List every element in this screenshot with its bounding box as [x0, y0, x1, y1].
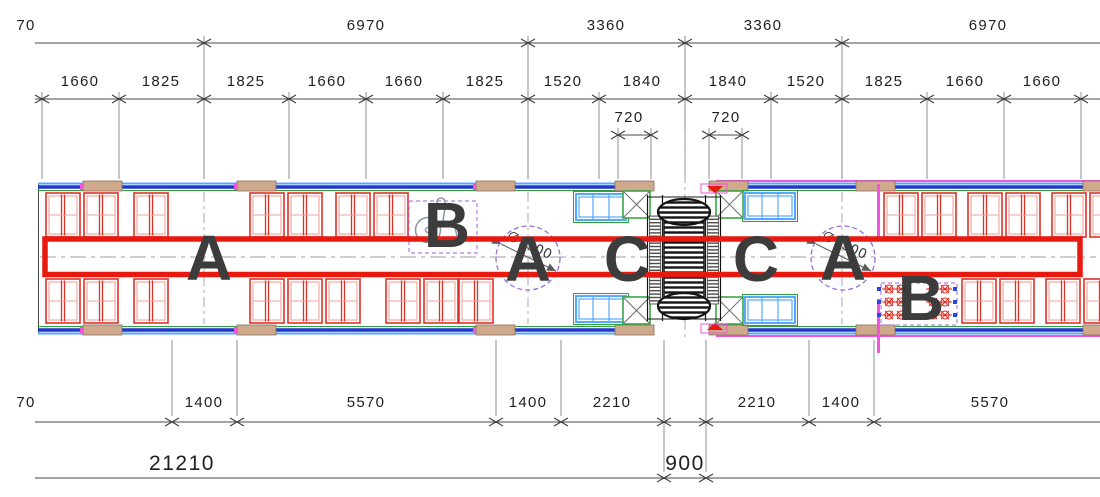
seat-unit — [326, 279, 360, 323]
seat-unit — [424, 279, 458, 323]
dimension-rows: 7069703360336069701660182518251660166018… — [16, 17, 1100, 482]
dimension-label: 1400 — [822, 394, 861, 411]
longitudinal-seat — [743, 295, 798, 326]
magenta-tag — [473, 327, 476, 334]
seat-unit — [1052, 193, 1086, 237]
seat-unit — [250, 279, 284, 323]
zone-label-a: A — [820, 222, 866, 294]
seat-unit — [336, 193, 370, 237]
dimension-label: 2210 — [593, 394, 632, 411]
magenta-tag — [234, 183, 237, 190]
dimension-label: 1840 — [709, 73, 748, 90]
dimension-label: 1660 — [61, 73, 100, 90]
dimension-label: 720 — [615, 109, 644, 126]
seat-unit — [386, 279, 420, 323]
dimension-label: 1400 — [509, 394, 548, 411]
seat-unit — [968, 193, 1002, 237]
zone-label-b: B — [898, 262, 944, 334]
marker-dot — [877, 287, 881, 291]
marker-dot — [877, 300, 881, 304]
seat-unit — [288, 193, 322, 237]
door-block — [856, 325, 895, 335]
seat-unit — [46, 279, 80, 323]
dimension-label: 2210 — [738, 394, 777, 411]
door-block — [856, 181, 895, 191]
seat-unit — [1000, 279, 1034, 323]
longitudinal-seat — [574, 192, 629, 223]
longitudinal-seat — [574, 294, 629, 325]
seat-unit — [374, 193, 408, 237]
dimension-label: 1660 — [308, 73, 347, 90]
seat-unit — [84, 193, 118, 237]
door-block — [615, 181, 654, 191]
dimension-label: 70 — [16, 17, 35, 34]
flip-seat-symbol — [882, 311, 896, 319]
end-wall-hatch — [708, 216, 719, 304]
seat-unit — [1090, 193, 1100, 237]
dimension-label: 1660 — [385, 73, 424, 90]
dimension-label: 900 — [665, 452, 705, 475]
dimension-label: 21210 — [149, 452, 215, 475]
seat-unit — [884, 193, 918, 237]
magenta-tag — [473, 183, 476, 190]
seat-unit — [134, 279, 168, 323]
floor-plan-drawing: 7069703360336069701660182518251660166018… — [0, 0, 1100, 497]
door-block — [83, 181, 122, 191]
zone-label-b: B — [424, 189, 470, 261]
dimension-label: 1520 — [544, 73, 583, 90]
diaphragm-plate — [658, 199, 710, 225]
seat-unit — [84, 279, 118, 323]
zone-label-a: A — [505, 223, 551, 295]
seat-unit — [922, 193, 956, 237]
dimension-label: 6970 — [969, 17, 1008, 34]
marker-dot — [953, 313, 957, 317]
dimension-label: 1520 — [787, 73, 826, 90]
seat-unit — [962, 279, 996, 323]
seat-unit — [459, 279, 493, 323]
door-block — [237, 325, 276, 335]
drawing-canvas: 7069703360336069701660182518251660166018… — [0, 0, 1100, 497]
seat-unit — [46, 193, 80, 237]
magenta-tag — [234, 327, 237, 334]
door-block — [476, 181, 515, 191]
seat-unit — [1084, 279, 1100, 323]
dimension-label: 70 — [16, 394, 35, 411]
door-block — [615, 325, 654, 335]
dimension-label: 1400 — [185, 394, 224, 411]
dimension-label: 720 — [712, 109, 741, 126]
dimension-label: 3360 — [587, 17, 626, 34]
dimension-label: 1660 — [1023, 73, 1062, 90]
equipment-box — [623, 297, 650, 324]
marker-dot — [877, 313, 881, 317]
magenta-tag — [80, 327, 83, 334]
seat-unit — [250, 193, 284, 237]
marker-dot — [953, 287, 957, 291]
flip-seat-symbol — [882, 298, 896, 306]
seat-unit — [1006, 193, 1040, 237]
door-block — [1083, 325, 1100, 335]
diaphragm-plate — [658, 293, 710, 319]
door-block — [476, 325, 515, 335]
zone-label-c: C — [733, 223, 779, 295]
magenta-post — [877, 299, 880, 353]
dimension-label: 1660 — [946, 73, 985, 90]
dimension-label: 6970 — [347, 17, 386, 34]
door-block — [237, 181, 276, 191]
dimension-label: 1840 — [623, 73, 662, 90]
equipment-box — [623, 191, 650, 218]
magenta-post — [877, 184, 880, 238]
flip-seat-symbol — [882, 285, 896, 293]
seat-unit — [134, 193, 168, 237]
gangway — [648, 195, 721, 321]
zone-label-a: A — [186, 222, 232, 294]
longitudinal-seat — [743, 191, 798, 222]
zone-label-c: C — [604, 223, 650, 295]
marker-dot — [953, 300, 957, 304]
door-block — [83, 325, 122, 335]
end-wall-hatch — [650, 216, 661, 304]
dimension-label: 5570 — [971, 394, 1010, 411]
dimension-label: 3360 — [744, 17, 783, 34]
magenta-tag — [80, 183, 83, 190]
dimension-label: 1825 — [466, 73, 505, 90]
dimension-label: 5570 — [347, 394, 386, 411]
dimension-label: 1825 — [227, 73, 266, 90]
door-block — [1083, 181, 1100, 191]
seat-unit — [288, 279, 322, 323]
dimension-label: 1825 — [142, 73, 181, 90]
seat-unit — [1046, 279, 1080, 323]
dimension-label: 1825 — [865, 73, 904, 90]
